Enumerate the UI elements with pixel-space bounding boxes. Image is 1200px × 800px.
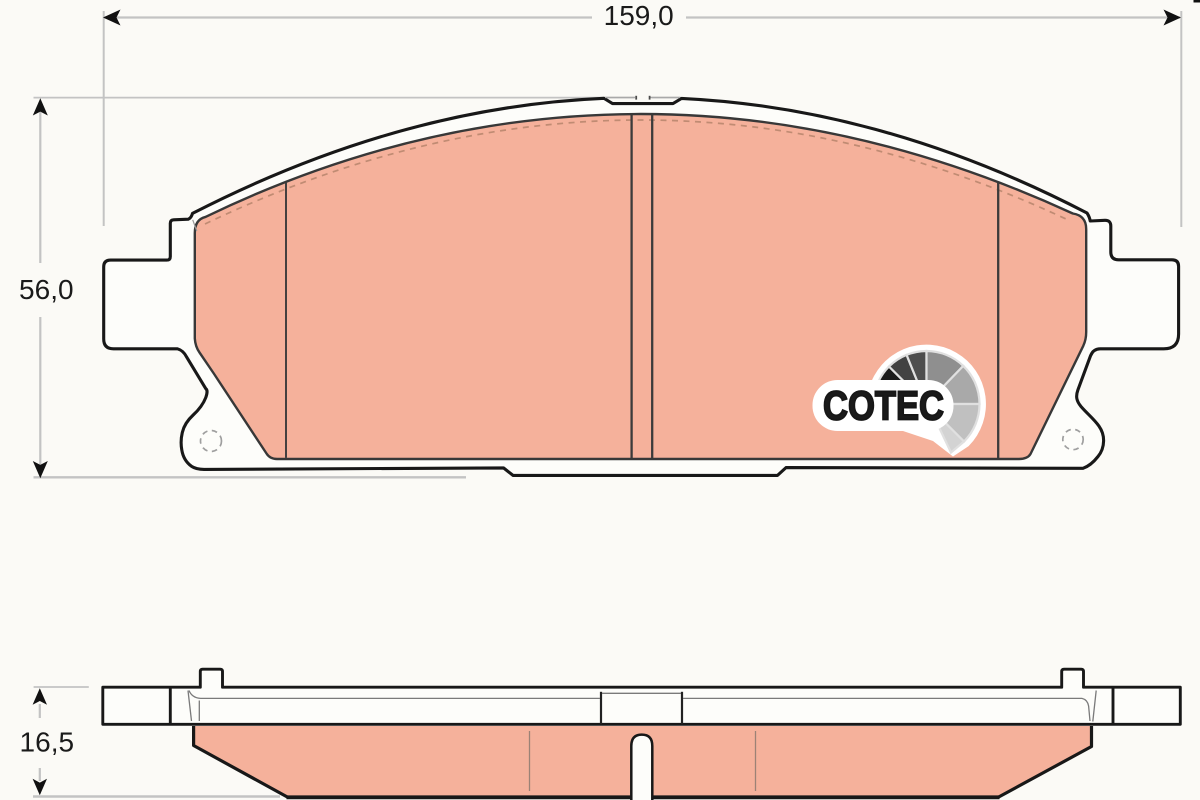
svg-text:16,5: 16,5	[20, 727, 75, 758]
svg-text:56,0: 56,0	[19, 274, 74, 305]
svg-text:159,0: 159,0	[604, 0, 674, 31]
svg-text:COTEC: COTEC	[823, 383, 944, 429]
